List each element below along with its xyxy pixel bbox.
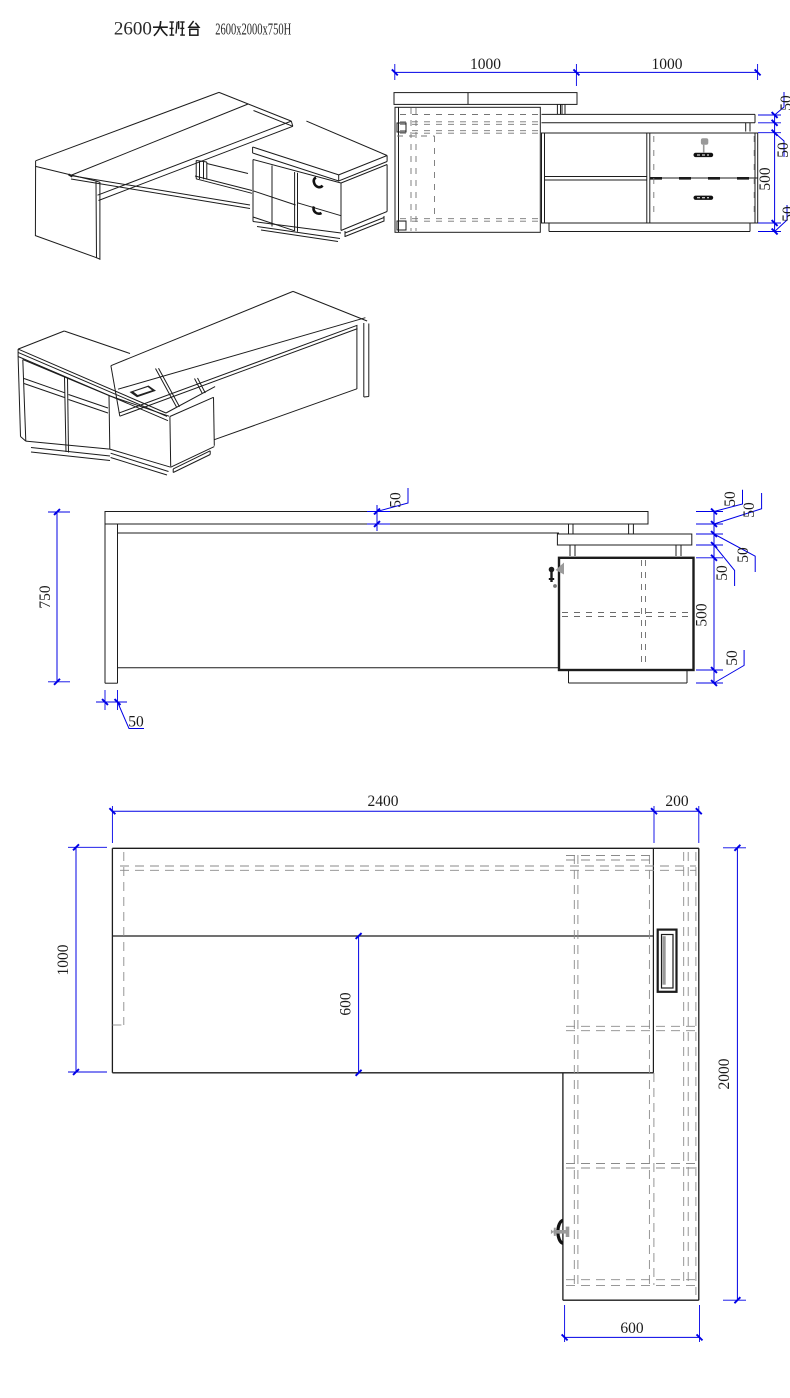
svg-text:50: 50 (722, 491, 739, 507)
svg-text:50: 50 (128, 714, 144, 731)
svg-text:1000: 1000 (470, 56, 501, 73)
svg-text:500: 500 (757, 167, 774, 191)
svg-text:600: 600 (620, 1320, 644, 1337)
svg-text:50: 50 (714, 565, 731, 581)
svg-text:500: 500 (694, 603, 711, 627)
svg-text:50: 50 (780, 206, 790, 222)
svg-text:50: 50 (741, 502, 758, 518)
svg-text:50: 50 (775, 142, 790, 158)
svg-text:2400: 2400 (368, 793, 399, 810)
svg-text:1000: 1000 (652, 56, 683, 73)
svg-text:50: 50 (735, 547, 752, 563)
svg-text:2000: 2000 (716, 1058, 733, 1089)
svg-text:50: 50 (778, 95, 790, 111)
svg-text:600: 600 (338, 992, 355, 1016)
svg-text:2600x2000x750H: 2600x2000x750H (215, 19, 291, 38)
svg-text:1000: 1000 (55, 944, 72, 975)
svg-text:50: 50 (388, 492, 405, 508)
svg-text:750: 750 (37, 585, 54, 609)
svg-text:200: 200 (665, 793, 689, 810)
svg-text:50: 50 (724, 650, 741, 666)
svg-text:2600: 2600 (114, 18, 152, 39)
